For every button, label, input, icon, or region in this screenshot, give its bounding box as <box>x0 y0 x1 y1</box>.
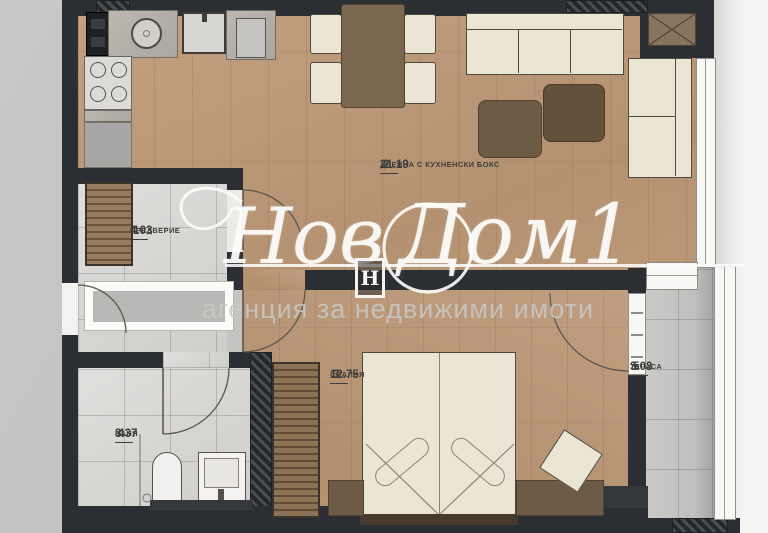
watermark-logo: Н <box>355 258 385 298</box>
floor-plan: 221.19 ДНЕВНА С КУХНЕНСКИ БОКС 14.03 ПРЕ… <box>0 0 768 533</box>
watermark-tagline: агенция за недвижими имоти <box>202 294 594 325</box>
watermark-logo-letter: Н <box>361 266 380 290</box>
watermark-brand-second: Дом1 <box>398 188 634 283</box>
